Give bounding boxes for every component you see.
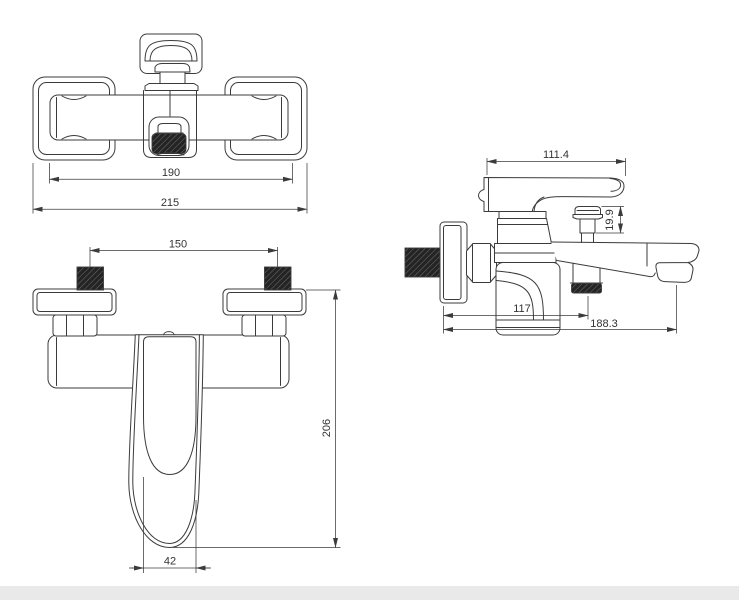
upper-body-block [498,219,552,244]
diverter-knob-flange [573,215,603,220]
escutcheon-side [440,222,467,303]
inlet-pipe-right [265,267,292,290]
dim-188-text: 188.3 [590,318,618,330]
hex-nut-side [467,244,497,283]
cartridge-collar [499,212,546,219]
hex-nut-left [53,315,97,336]
thread-ring-top [152,134,186,154]
dim-117-text: 117 [513,303,531,315]
handle-cap [155,64,190,73]
diverter-knob-stem [580,219,595,243]
body-block-side [496,263,560,336]
shower-hose-thread-ring [572,284,602,294]
wall-pipe-side [405,248,441,277]
side-view: 111.4 19.9 117 188.3 [405,149,699,335]
technical-drawing: 190 215 150 206 42 [0,0,739,600]
inlet-pipe-left [77,267,104,290]
handle-stem [160,72,185,84]
dim-19-text: 19.9 [604,209,616,230]
dim-215-text: 215 [161,197,179,209]
dim-206-text: 206 [321,419,333,437]
front-view: 150 206 42 [33,239,341,574]
dim-42-text: 42 [164,556,176,568]
hex-nut-right [242,315,286,336]
dim-150-text: 150 [169,239,187,251]
top-view: 190 215 [33,34,307,214]
dim-111-text: 111.4 [543,149,569,161]
dim-190-text: 190 [162,167,180,179]
bottom-strip [0,586,739,600]
valve-collar [145,84,198,91]
